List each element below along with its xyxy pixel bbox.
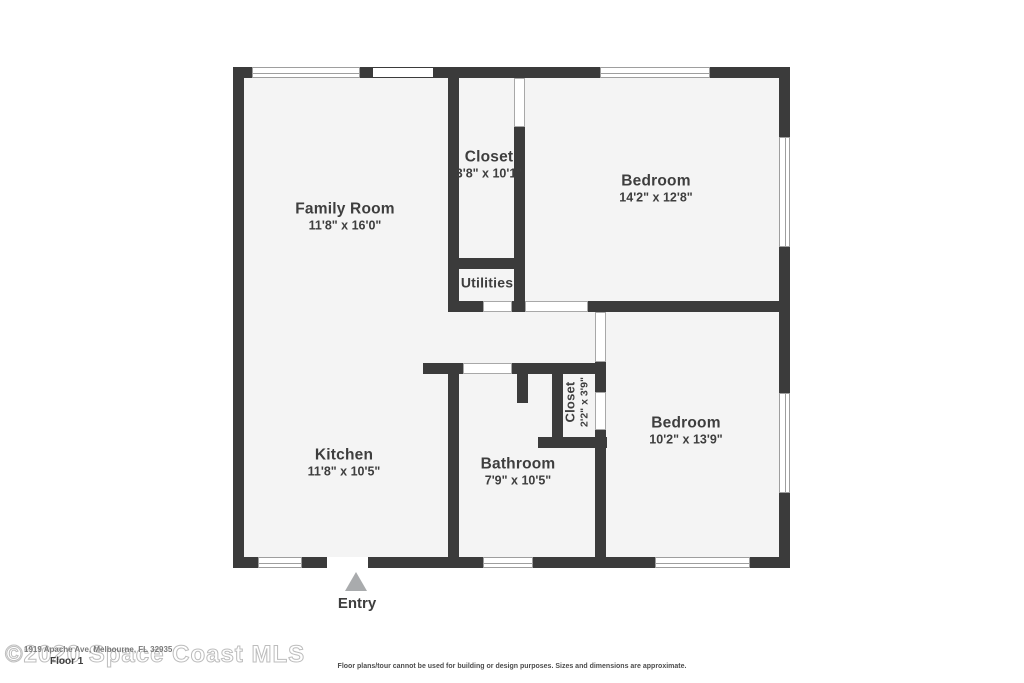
window-marker [483, 557, 533, 568]
window-marker [779, 137, 790, 247]
room-name: Family Room [295, 200, 395, 219]
room-dimensions: 2'2" x 3'9" [579, 377, 592, 427]
property-address: 1919 Apache Ave, Melbourne, FL 32935 [24, 645, 172, 654]
door-opening [483, 301, 512, 312]
room-label-closet-top: Closet 3'8" x 10'1" [456, 148, 522, 183]
window-marker [779, 393, 790, 493]
room-dimensions: 11'8" x 10'5" [308, 465, 381, 481]
room-dimensions: 7'9" x 10'5" [481, 474, 556, 490]
room-label-bathroom: Bathroom 7'9" x 10'5" [481, 455, 556, 490]
room-label-closet-small: Closet 2'2" x 3'9" [562, 377, 591, 427]
room-dimensions: 3'8" x 10'1" [456, 167, 522, 183]
door-opening [595, 312, 606, 362]
room-label-utilities: Utilities [461, 274, 513, 292]
window-marker [373, 68, 433, 77]
floor-number-label: Floor 1 [50, 656, 83, 667]
room-label-bedroom-bottom: Bedroom 10'2" x 13'9" [649, 414, 722, 449]
wall [448, 363, 459, 557]
entry-arrow-icon [345, 572, 367, 591]
wall [512, 301, 525, 312]
room-dimensions: 14'2" x 12'8" [619, 191, 692, 207]
wall [588, 301, 779, 312]
entry-label: Entry [338, 595, 376, 612]
room-dimensions: 11'8" x 16'0" [295, 219, 395, 235]
room-dimensions: 10'2" x 13'9" [649, 433, 722, 449]
window-marker [600, 67, 710, 78]
entry-door-opening [327, 557, 368, 568]
wall [517, 374, 528, 403]
room-name: Kitchen [308, 446, 381, 465]
room-name: Bedroom [649, 414, 722, 433]
wall [595, 430, 606, 557]
wall [538, 437, 607, 448]
room-name: Bedroom [619, 172, 692, 191]
room-name: Closet [562, 377, 578, 427]
door-opening [463, 363, 512, 374]
room-name: Utilities [461, 274, 513, 292]
door-opening [525, 301, 588, 312]
room-name: Bathroom [481, 455, 556, 474]
window-marker [258, 557, 302, 568]
window-marker [252, 67, 360, 78]
disclaimer-text: Floor plans/tour cannot be used for buil… [338, 663, 687, 670]
door-opening [514, 78, 525, 127]
window-marker [655, 557, 750, 568]
wall [448, 78, 459, 312]
room-label-bedroom-top: Bedroom 14'2" x 12'8" [619, 172, 692, 207]
room-label-kitchen: Kitchen 11'8" x 10'5" [308, 446, 381, 481]
room-name: Closet [456, 148, 522, 167]
room-label-family-room: Family Room 11'8" x 16'0" [295, 200, 395, 235]
floor-plan: Family Room 11'8" x 16'0" Closet 3'8" x … [233, 67, 790, 568]
door-opening [595, 392, 606, 430]
wall [448, 301, 483, 312]
